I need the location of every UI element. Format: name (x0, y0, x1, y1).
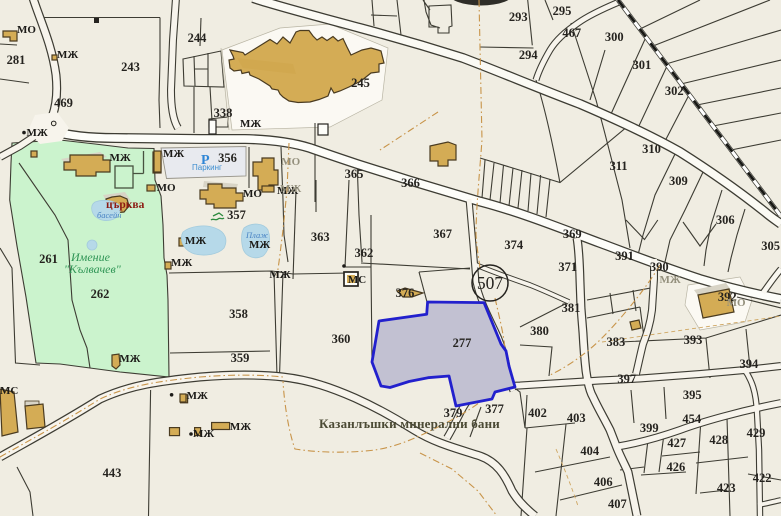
svg-text:443: 443 (103, 466, 122, 480)
svg-text:360: 360 (332, 332, 351, 346)
svg-text:399: 399 (640, 421, 659, 435)
svg-text:МЖ: МЖ (27, 127, 48, 139)
svg-text:МЖ: МЖ (193, 428, 214, 440)
svg-text:377: 377 (485, 402, 504, 416)
svg-text:245: 245 (351, 76, 370, 90)
svg-text:394: 394 (740, 357, 760, 371)
svg-text:338: 338 (214, 106, 233, 120)
svg-text:МО: МО (727, 297, 746, 309)
svg-text:383: 383 (607, 335, 626, 349)
svg-text:МЖ: МЖ (269, 269, 290, 281)
svg-text:басейн: басейн (97, 210, 121, 220)
svg-text:244: 244 (188, 31, 208, 45)
svg-text:Казанлъшки минерални бани: Казанлъшки минерални бани (319, 416, 500, 431)
svg-text:363: 363 (311, 230, 330, 244)
svg-text:310: 310 (642, 142, 661, 156)
svg-text:309: 309 (669, 174, 688, 188)
svg-text:381: 381 (562, 301, 581, 315)
svg-text:църква: църква (106, 199, 145, 211)
svg-text:404: 404 (580, 444, 600, 458)
svg-text:МО: МО (157, 182, 176, 194)
svg-text:390: 390 (650, 260, 669, 274)
svg-text:МЖ: МЖ (249, 239, 270, 251)
svg-text:МЖ: МЖ (110, 152, 131, 164)
svg-text:277: 277 (453, 336, 472, 350)
svg-text:"Кълвачев": "Кълвачев" (64, 262, 122, 276)
svg-text:362: 362 (355, 246, 374, 260)
svg-text:294: 294 (519, 48, 539, 62)
svg-text:469: 469 (54, 96, 73, 110)
svg-text:391: 391 (615, 249, 634, 263)
svg-text:365: 365 (345, 167, 364, 181)
svg-text:262: 262 (91, 287, 110, 301)
svg-text:МЖ: МЖ (280, 183, 301, 195)
svg-text:369: 369 (563, 227, 582, 241)
svg-text:МЖ: МЖ (57, 49, 78, 61)
svg-text:422: 422 (753, 471, 772, 485)
svg-text:393: 393 (684, 333, 703, 347)
svg-text:243: 243 (121, 60, 140, 74)
svg-text:403: 403 (567, 411, 586, 425)
svg-text:380: 380 (530, 324, 549, 338)
svg-text:МО: МО (17, 24, 36, 36)
svg-text:293: 293 (509, 10, 528, 24)
svg-text:374: 374 (504, 238, 524, 252)
svg-text:МЖ: МЖ (187, 390, 208, 402)
svg-text:429: 429 (747, 426, 766, 440)
svg-text:305: 305 (761, 239, 780, 253)
svg-text:426: 426 (667, 460, 686, 474)
svg-text:МЖ: МЖ (185, 235, 206, 247)
svg-text:397: 397 (617, 372, 636, 386)
svg-text:395: 395 (683, 388, 702, 402)
svg-text:367: 367 (433, 227, 452, 241)
svg-text:406: 406 (594, 475, 613, 489)
svg-text:МО: МО (243, 188, 262, 200)
svg-text:300: 300 (605, 30, 624, 44)
svg-text:МС: МС (0, 385, 18, 397)
svg-text:366: 366 (401, 176, 420, 190)
svg-text:МО: МО (281, 156, 300, 168)
svg-text:Паркинг: Паркинг (192, 163, 222, 172)
svg-text:МЖ: МЖ (171, 257, 192, 269)
svg-text:Плаж: Плаж (245, 230, 268, 240)
svg-text:МЖ: МЖ (240, 118, 261, 130)
svg-text:295: 295 (553, 4, 572, 18)
svg-text:МС: МС (348, 274, 366, 286)
svg-text:358: 358 (229, 307, 248, 321)
svg-text:301: 301 (633, 58, 652, 72)
svg-text:428: 428 (709, 433, 728, 447)
svg-text:311: 311 (609, 159, 627, 173)
svg-text:427: 427 (667, 436, 686, 450)
svg-text:376: 376 (396, 286, 415, 300)
svg-text:467: 467 (562, 26, 581, 40)
svg-text:402: 402 (528, 406, 547, 420)
svg-text:281: 281 (7, 53, 26, 67)
svg-text:МЖ: МЖ (660, 274, 681, 286)
svg-text:302: 302 (665, 84, 684, 98)
svg-text:407: 407 (608, 497, 627, 511)
svg-text:261: 261 (39, 252, 58, 266)
svg-text:371: 371 (558, 260, 577, 274)
svg-text:306: 306 (716, 213, 735, 227)
svg-text:507: 507 (477, 273, 504, 293)
svg-text:454: 454 (682, 412, 702, 426)
svg-text:МЖ: МЖ (163, 148, 184, 160)
svg-text:МЖ: МЖ (230, 421, 251, 433)
svg-text:423: 423 (717, 481, 736, 495)
svg-text:МЖ: МЖ (119, 353, 140, 365)
svg-text:357: 357 (227, 208, 246, 222)
svg-text:359: 359 (231, 351, 250, 365)
